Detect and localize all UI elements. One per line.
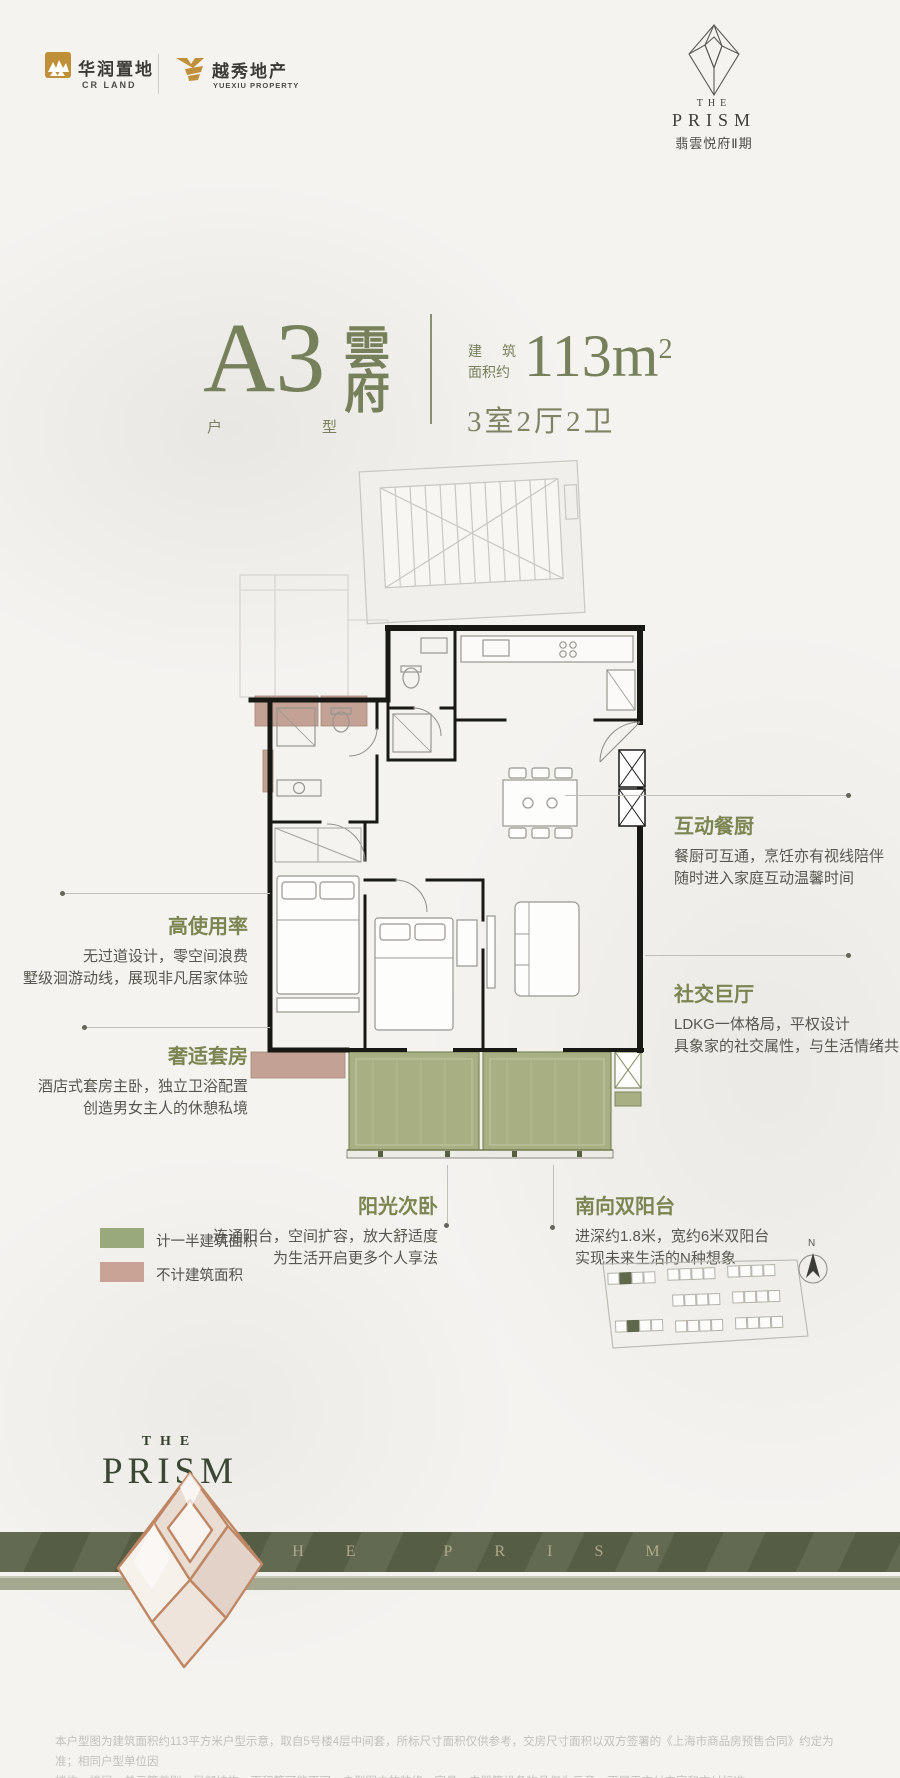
- disclaimer: 本户型图为建筑面积约113平方米户型示意，取自5号楼4层中间套，所标尺寸面积仅供…: [55, 1732, 855, 1778]
- annotation-line1: 酒店式套房主卧，独立卫浴配置: [38, 1076, 248, 1098]
- leader-line-dining-kitchen: [565, 795, 848, 796]
- prism-logo-the: THE: [664, 98, 764, 109]
- leader-dot: [82, 1025, 87, 1030]
- crland-mountain-icon: [45, 52, 71, 80]
- crland-name-en: CR LAND: [82, 80, 137, 90]
- utility-balcony: [615, 1052, 641, 1106]
- area-number: 113m: [524, 323, 658, 389]
- annotation-efficiency: 高使用率 无过道设计，零空间浪费 墅级洄游动线，展现非凡居家体验: [23, 910, 248, 990]
- annotation-line1: 餐厨可互通，烹饪亦有视线陪伴: [674, 846, 884, 868]
- leader-dot: [550, 1225, 555, 1230]
- headline-divider: [430, 314, 432, 424]
- leader-line-suite: [85, 1027, 270, 1028]
- disclaimer-line2: 楼栋、楼层、单元等差别，局部结构、面积等可能不同，户型图中的装修、家具、电器等设…: [55, 1772, 855, 1778]
- logo-divider: [158, 54, 159, 94]
- stair-core-outline: [359, 461, 585, 624]
- annotation-dining-kitchen: 互动餐厨 餐厨可互通，烹饪亦有视线陪伴 随时进入家庭互动温馨时间: [674, 810, 884, 890]
- balcony-right: [483, 1052, 611, 1152]
- crland-logo: [45, 52, 71, 85]
- legend-label-half-counted: 计一半建筑面积: [156, 1230, 258, 1251]
- annotation-line1: LDKG一体格局，平权设计: [674, 1014, 900, 1036]
- compass-north-label: N: [808, 1238, 815, 1249]
- annotation-line1: 无过道设计，零空间浪费: [23, 946, 248, 968]
- floorplan-poster: 华润置地 CR LAND 越秀地产 YUEXIU PROPERTY THE PR…: [0, 0, 900, 1778]
- kitchen-fixtures: [461, 636, 635, 710]
- yuexiu-name: 越秀地产: [212, 57, 288, 82]
- project-phase-label: 翡雲悦府Ⅱ期: [634, 133, 794, 152]
- leader-line-balcony: [553, 1165, 554, 1225]
- yuexiu-ye-icon: [175, 56, 205, 82]
- leader-dot: [846, 953, 851, 958]
- balcony-left: [349, 1052, 479, 1152]
- unit-name: 雲 府: [344, 327, 390, 415]
- annotation-title: 高使用率: [23, 910, 248, 939]
- yuexiu-name-en: YUEXIU PROPERTY: [213, 81, 299, 90]
- leader-dot: [60, 891, 65, 896]
- annotation-line2: 创造男女主人的休憩私境: [38, 1098, 248, 1120]
- annotation-line2: 具象家的社交属性，与生活情绪共鸣: [674, 1036, 900, 1058]
- compass-icon: [796, 1250, 830, 1291]
- leader-dot: [444, 1223, 449, 1228]
- legend-label-not-counted: 不计建筑面积: [156, 1264, 243, 1285]
- room-configuration: 3室2厅2卫: [467, 398, 616, 440]
- annotation-title: 奢适套房: [38, 1040, 248, 1069]
- wardrobe: [275, 828, 361, 862]
- annotation-title: 南向双阳台: [575, 1190, 769, 1219]
- annotation-line2: 随时进入家庭互动温馨时间: [674, 868, 884, 890]
- prism-logo-name: PRISM: [634, 110, 794, 131]
- leader-line-efficiency: [63, 893, 270, 894]
- crland-name: 华润置地: [78, 55, 154, 80]
- legend-swatch-not-counted: [100, 1262, 144, 1282]
- bathroom-fixtures: [393, 638, 447, 752]
- leader-dot: [846, 793, 851, 798]
- second-bed: [375, 918, 477, 1030]
- disclaimer-line1: 本户型图为建筑面积约113平方米户型示意，取自5号楼4层中间套，所标尺寸面积仅供…: [55, 1732, 855, 1772]
- leader-line-bedroom: [447, 1165, 448, 1223]
- unit-code: A3: [203, 312, 325, 404]
- annotation-title: 互动餐厨: [674, 810, 884, 839]
- yuexiu-logo: [175, 56, 205, 87]
- annotation-living: 社交巨厅 LDKG一体格局，平权设计 具象家的社交属性，与生活情绪共鸣: [674, 978, 900, 1058]
- annotation-title: 社交巨厅: [674, 978, 900, 1007]
- crystal-diamond-icon: [108, 1470, 272, 1675]
- floorplan-drawing: [215, 450, 655, 1185]
- dining-table: [503, 768, 577, 838]
- annotation-line2: 为生活开启更多个人享法: [213, 1248, 438, 1270]
- annotation-title: 阳光次卧: [213, 1190, 438, 1219]
- annotation-suite: 奢适套房 酒店式套房主卧，独立卫浴配置 创造男女主人的休憩私境: [38, 1040, 248, 1120]
- legend-swatch-half-counted: [100, 1228, 144, 1248]
- unit-type-label: 户型: [207, 416, 337, 437]
- leader-line-living: [645, 955, 848, 956]
- annotation-line1: 进深约1.8米，宽约6米双阳台: [575, 1226, 769, 1248]
- area-value: 113m2: [524, 326, 672, 386]
- area-superscript: 2: [658, 334, 672, 365]
- balcony-rail: [347, 1150, 613, 1158]
- annotation-line2: 墅级洄游动线，展现非凡居家体验: [23, 968, 248, 990]
- master-bed: [277, 876, 359, 1012]
- sofa-area: [487, 902, 579, 996]
- unit-name-char2: 府: [344, 371, 390, 415]
- bottom-logo-the: THE: [95, 1434, 245, 1450]
- unit-name-char1: 雲: [344, 327, 390, 371]
- site-map: [545, 1258, 820, 1359]
- prism-diamond-outline-icon: [688, 24, 740, 101]
